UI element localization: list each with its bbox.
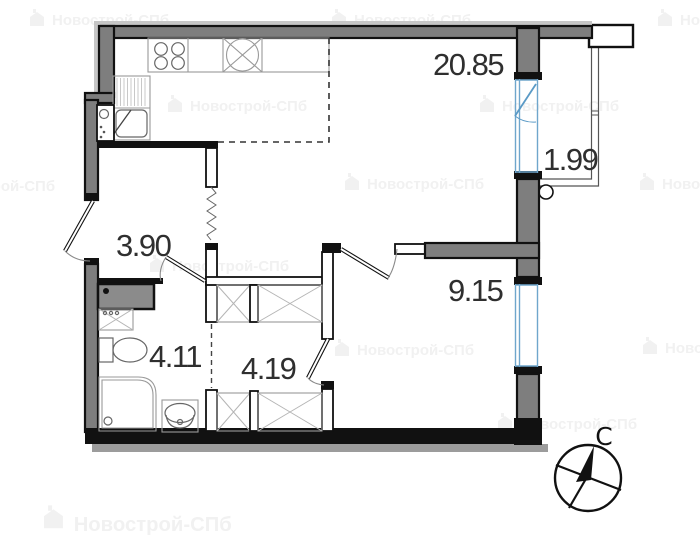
adjacent-balcony-stub [589,25,633,47]
compass-rose: С [555,422,621,511]
wardrobe-door [308,339,328,385]
room-label-hallway: 3.90 [116,228,172,263]
left-wall-mid [85,100,98,200]
balcony-door-swing-arc [515,116,536,122]
bottom-wall [85,428,542,444]
room-label-bedroom: 9.15 [448,273,503,308]
closet-partition [250,391,258,431]
watermark: Новострой-СПб [44,505,232,535]
svg-text:Новострой-СПб: Новострой-СПб [665,340,700,357]
washing-machine [98,284,154,309]
right-wall-cap [514,72,542,80]
svg-text:Новострой-СПб: Новострой-СПб [190,98,307,115]
right-wall-mid-segment [517,179,539,277]
watermark: Новострой-СПб [335,339,474,359]
bottom-right-corner [514,418,542,445]
water-heater-cabinet [99,309,133,330]
kitchen-hall-wall-return [206,148,217,187]
shower-tray [99,377,156,431]
kitchen-counter-dividers [188,38,262,72]
entrance-jamb-top [84,193,99,201]
compass-north-label: С [595,422,612,451]
room-label-balcony: 1.99 [543,142,598,177]
bath-wardrobe-wall-lower [206,390,217,431]
living-bedroom-wall-thin [395,244,426,254]
closet-x [258,393,322,431]
bedroom-door [341,249,397,278]
balcony-door-window [515,79,538,173]
svg-text:Новострой-СПб: Новострой-СПб [680,12,700,29]
svg-text:Новострой-СПб: Новострой-СПб [367,176,484,193]
entrance-door [65,201,93,261]
wardrobe-top-wall [206,277,327,285]
kitchen-sink-unit [223,38,262,72]
living-bedroom-wall-thick [425,243,539,258]
kitchen-hall-wall [97,141,218,148]
left-wall-lower [85,264,98,432]
stove [155,43,185,70]
svg-text:Новострой-СПб: Новострой-СПб [74,514,232,535]
bedroom-window [515,284,538,367]
wash-basin [162,400,198,432]
right-wall-cap [514,366,542,374]
left-wall-upper [99,26,114,97]
svg-text:Новострой-СПб: Новострой-СПб [0,178,55,195]
watermark: Новострой-СПб [0,178,55,195]
wardrobe-right-wall-upper [322,252,333,339]
watermark: Новострой-СПб [658,9,700,29]
kitchen-zone-dashed-boundary [216,38,329,142]
watermark: Новострой-СПб [345,173,484,193]
room-label-living: 20.85 [433,47,503,82]
room-label-wardrobe: 4.19 [241,351,296,386]
svg-text:Новострой-СПб: Новострой-СПб [357,342,474,359]
floor-plan-drawing: Новострой-СПб Новострой-СПб Новострой-СП… [0,0,700,535]
drainboard-hatch [117,78,145,106]
utility-panel [97,105,114,141]
closet-partition [250,285,258,322]
floor-plan-page: Новострой-СПб Новострой-СПб Новострой-СП… [0,0,700,535]
closet-x [217,285,250,322]
compass-north-needle [576,446,594,482]
wall-break-zigzag [207,187,216,240]
closet-x [217,393,250,431]
right-wall-top-segment [517,28,539,74]
bottom-wall-outer-band [92,444,548,452]
closet-x [258,285,322,322]
right-wall-cap [514,277,542,285]
wardrobe-right-wall-lower [322,389,333,431]
bedroom-door-jamb [322,243,341,253]
room-label-bathroom: 4.11 [149,339,201,374]
kitchen-wall-sink [113,76,150,140]
toilet [99,338,147,362]
svg-text:Новострой-СПб: Новострой-СПб [662,176,700,193]
watermark: Новострой-СПб [643,337,700,357]
balcony-drain-circle [539,185,553,199]
kitchen [97,38,329,142]
watermark: Новострой-СПб [640,173,700,193]
watermark: Новострой-СПб [168,95,307,115]
bath-wardrobe-wall-cap [205,243,218,250]
